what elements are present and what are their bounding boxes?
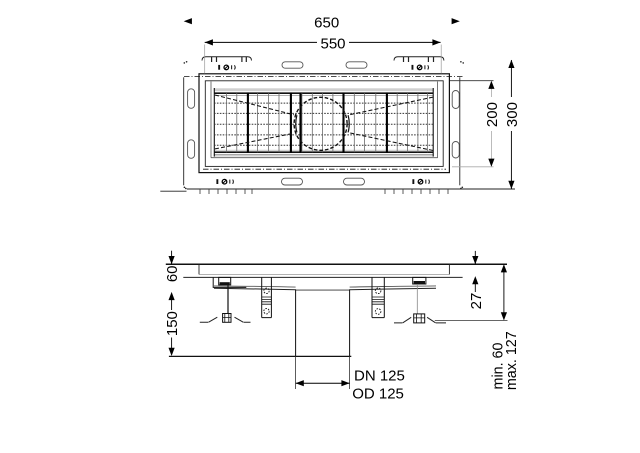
svg-text:550: 550	[320, 35, 345, 52]
svg-text:OD 125: OD 125	[352, 386, 404, 403]
svg-text:max. 127: max. 127	[504, 331, 520, 390]
svg-text:27: 27	[468, 293, 485, 310]
svg-text:300: 300	[504, 102, 521, 127]
svg-text:60: 60	[164, 265, 181, 282]
svg-text:150: 150	[164, 311, 181, 336]
svg-text:200: 200	[484, 102, 501, 127]
svg-text:650: 650	[314, 15, 339, 32]
svg-text:DN 125: DN 125	[354, 368, 405, 385]
